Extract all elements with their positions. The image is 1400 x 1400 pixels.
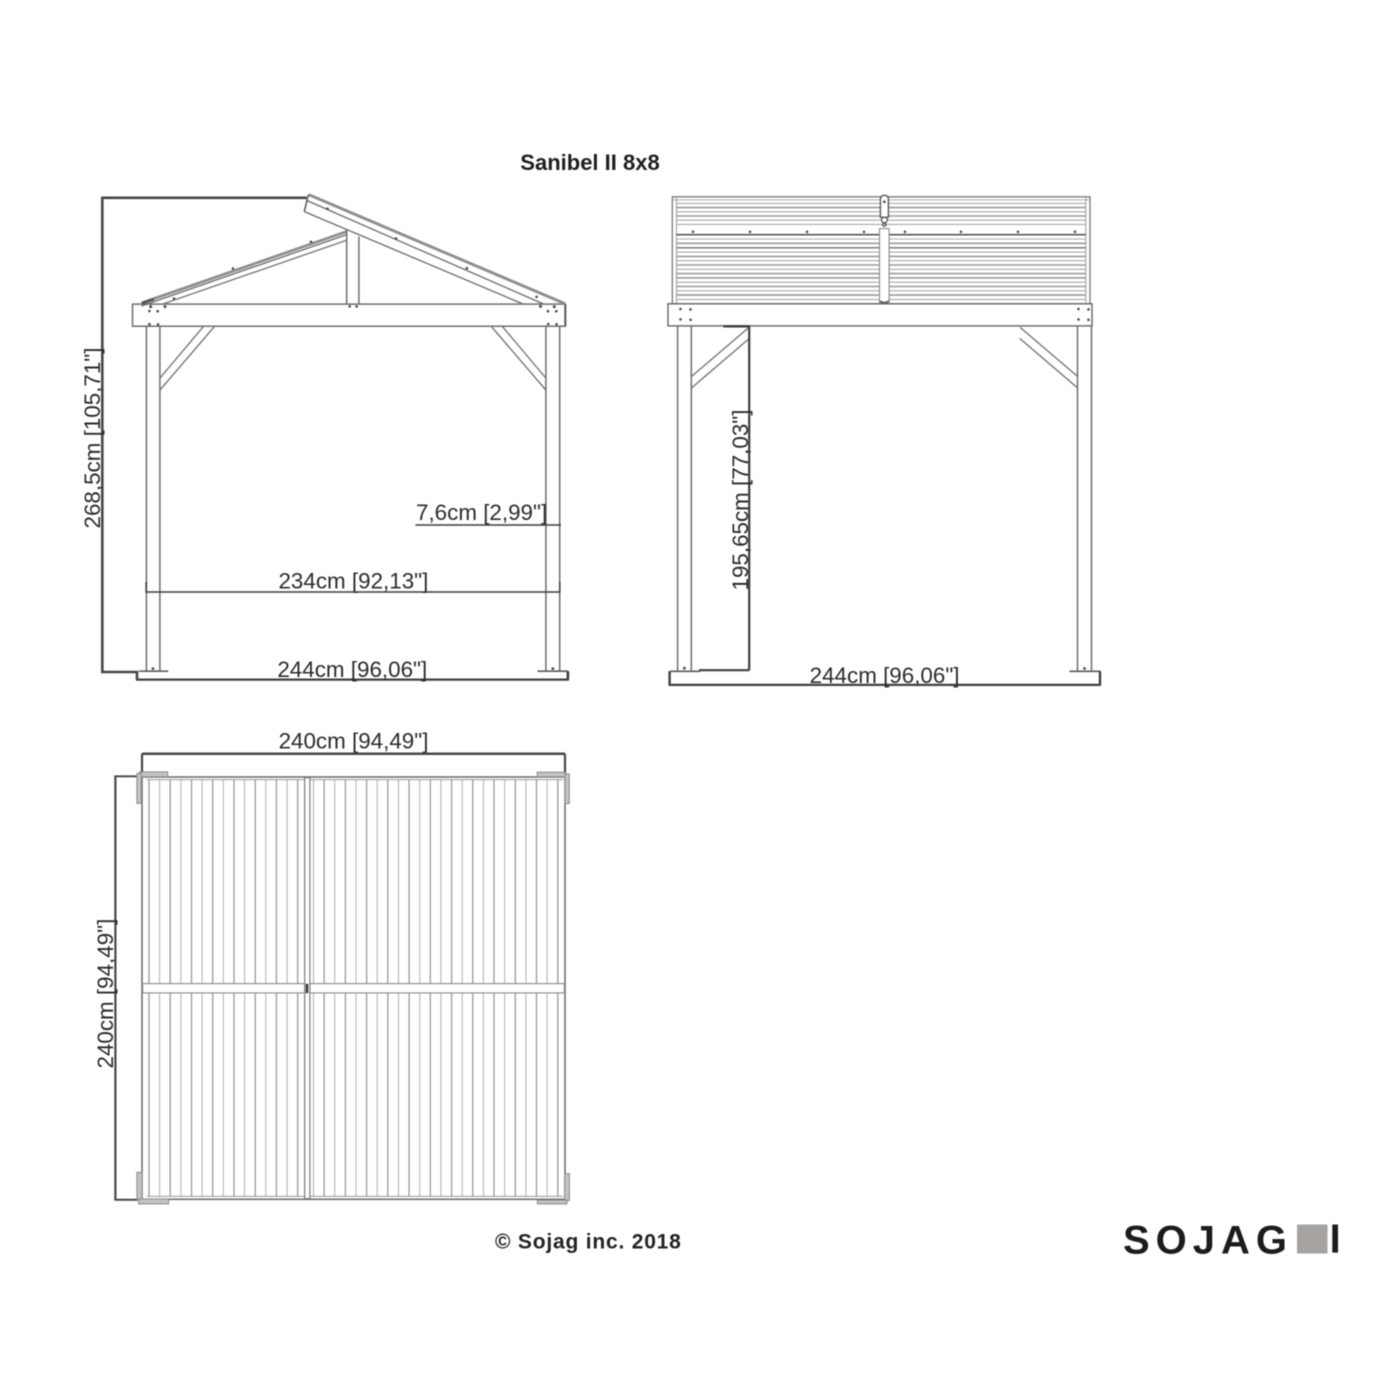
svg-text:© Sojag inc. 2018: © Sojag inc. 2018 xyxy=(495,1231,682,1254)
svg-text:195,65cm [77,03"]: 195,65cm [77,03"] xyxy=(728,410,753,591)
svg-text:7,6cm [2,99"]: 7,6cm [2,99"] xyxy=(416,500,547,525)
svg-text:244cm [96,06"]: 244cm [96,06"] xyxy=(810,663,960,688)
svg-text:234cm [92,13"]: 234cm [92,13"] xyxy=(278,569,428,594)
svg-text:240cm [94,49"]: 240cm [94,49"] xyxy=(279,729,429,754)
svg-text:240cm [94,49"]: 240cm [94,49"] xyxy=(93,919,118,1069)
svg-text:SOJAG: SOJAG xyxy=(1123,1218,1293,1262)
svg-text:268,5cm [105,71"]: 268,5cm [105,71"] xyxy=(80,348,105,529)
svg-text:Sanibel II 8x8: Sanibel II 8x8 xyxy=(520,150,659,175)
svg-text:244cm [96,06"]: 244cm [96,06"] xyxy=(277,657,427,682)
